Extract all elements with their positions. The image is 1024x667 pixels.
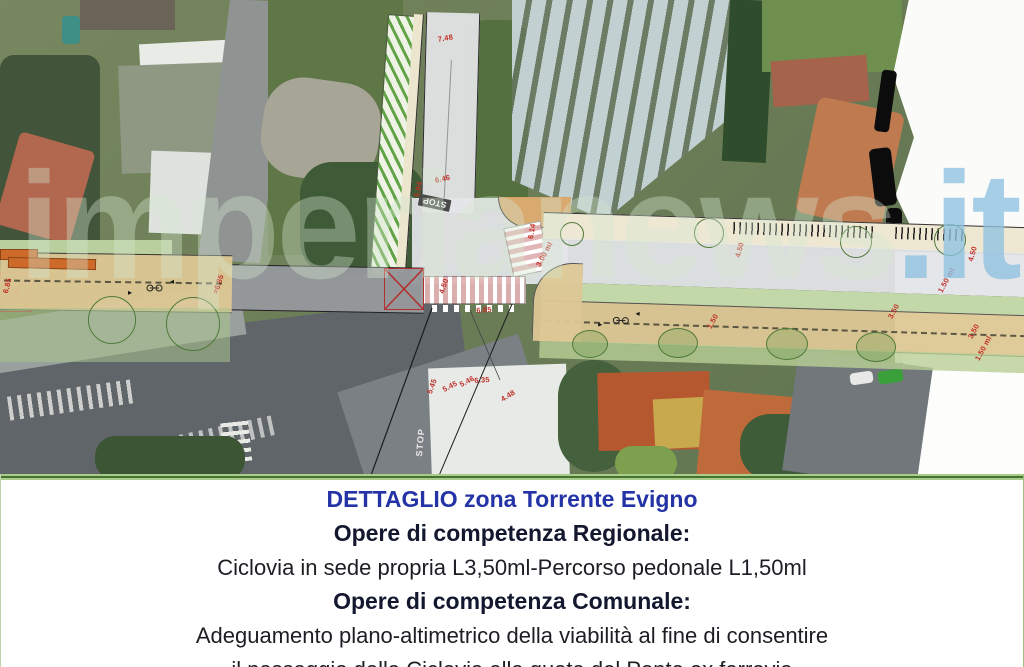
dimension-label: 3.50 bbox=[886, 302, 901, 320]
dimension-label: 7.48 bbox=[437, 32, 454, 44]
dimension-label: 4.50 bbox=[966, 245, 979, 262]
dimension-label: 6.14 bbox=[526, 223, 538, 240]
dimension-label: 4.48 bbox=[499, 388, 517, 404]
panel-line-3: Ciclovia in sede propria L3,50ml-Percors… bbox=[1, 555, 1023, 581]
dimension-label: 3.50 bbox=[966, 322, 981, 340]
dimension-label: ≈6.85 bbox=[211, 273, 226, 295]
panel-border bbox=[1, 474, 1023, 480]
aerial-photo: ◂ ▸ ◂ ▸ bbox=[0, 0, 1024, 474]
panel-line-5: Adeguamento plano-altimetrico della viab… bbox=[1, 623, 1023, 649]
stop-road-marking: STOP bbox=[414, 428, 426, 457]
dimension-layer: 7.486.465.84STOP6.143.00 ml4.506.856.85≈… bbox=[0, 0, 1024, 474]
stop-sign-label: STOP bbox=[418, 194, 452, 212]
caption-panel: DETTAGLIO zona Torrente Evigno Opere di … bbox=[0, 474, 1024, 667]
screenshot-stage: ◂ ▸ ◂ ▸ bbox=[0, 0, 1024, 667]
dimension-label: 1.50 bbox=[705, 312, 720, 330]
dimension-label: 1.50 ml bbox=[973, 334, 994, 362]
dimension-label: 5.45 bbox=[441, 379, 459, 394]
panel-line-4: Opere di competenza Comunale: bbox=[1, 588, 1023, 615]
panel-title: DETTAGLIO zona Torrente Evigno bbox=[1, 486, 1023, 513]
dimension-label: 5.46 bbox=[458, 374, 476, 389]
dimension-label: 4.50 bbox=[733, 241, 746, 258]
dimension-label: 6.85 bbox=[476, 305, 492, 315]
panel-line-6: il passaggio della Ciclovia alla quota d… bbox=[1, 657, 1023, 667]
dimension-label: 4.50 bbox=[437, 277, 450, 294]
dimension-label: 6.35 bbox=[474, 375, 490, 385]
dimension-label: 1.50 ml bbox=[936, 266, 957, 294]
panel-line-2: Opere di competenza Regionale: bbox=[1, 520, 1023, 547]
dimension-label: 6.85 bbox=[1, 277, 13, 294]
dimension-label: 3.00 ml bbox=[534, 240, 555, 268]
dimension-label: 6.46 bbox=[434, 173, 451, 185]
dimension-label: 5.45 bbox=[425, 378, 439, 396]
